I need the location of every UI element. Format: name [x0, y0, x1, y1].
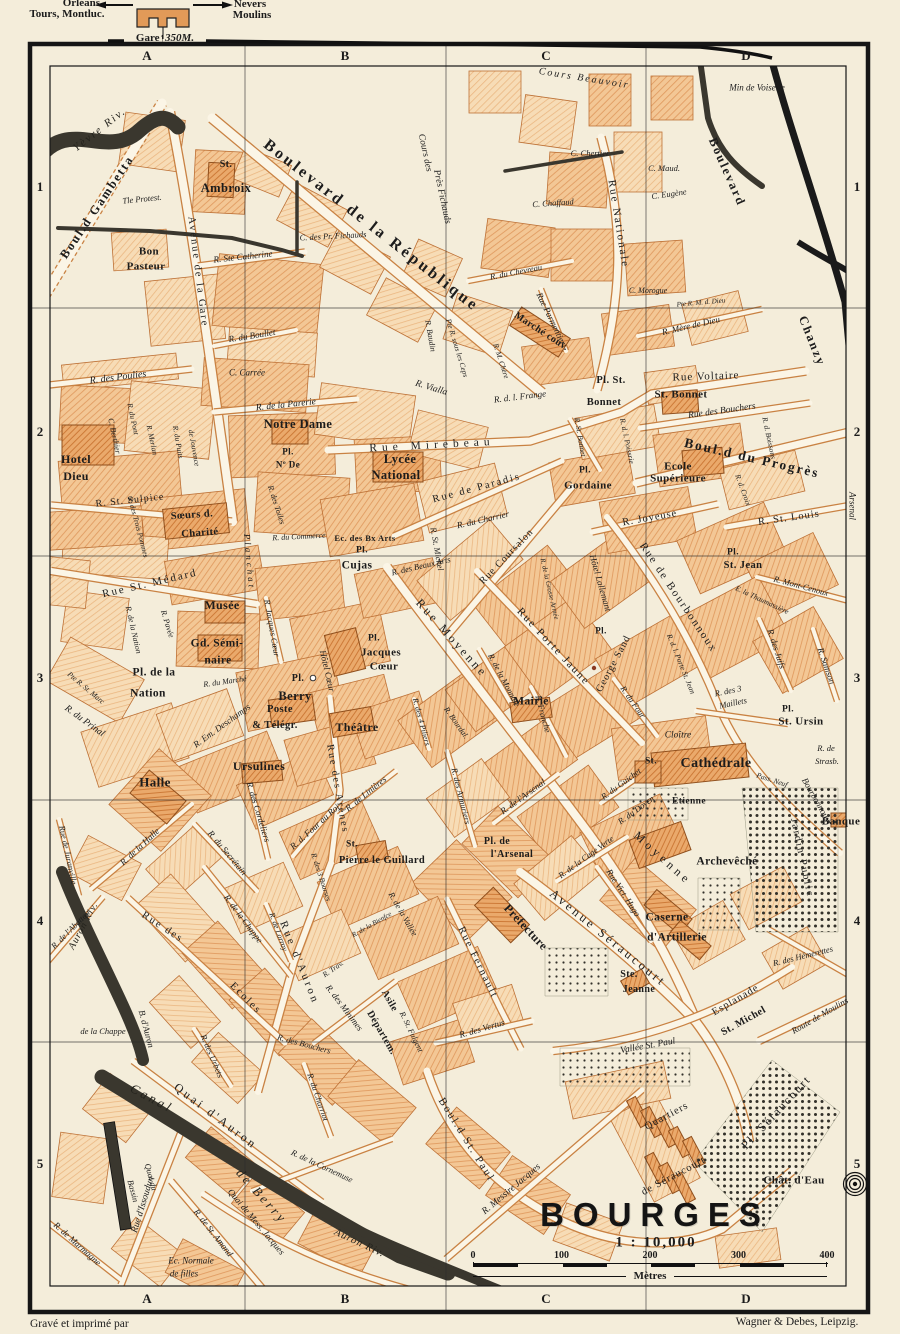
grid-index: 2 [37, 424, 44, 440]
map-artwork [0, 0, 900, 1334]
station-icon [137, 9, 189, 27]
scale-bar: 0100200300400 Mètres [473, 1250, 827, 1282]
dest-left-line2: Tours, Montluc. [29, 8, 104, 20]
credit-engraver: Gravé et imprimé par [30, 1318, 129, 1330]
grid-index: 5 [37, 1156, 44, 1172]
grid-index: 5 [854, 1156, 861, 1172]
grid-index: 3 [37, 670, 44, 686]
credit-publisher: Wagner & Debes, Leipzig. [736, 1316, 859, 1328]
place-berry-marker [310, 675, 316, 681]
grid-index: 4 [854, 913, 861, 929]
scale-unit: Mètres [626, 1270, 675, 1282]
grid-index: D [741, 1291, 750, 1307]
map-scale-ratio: 1 : 10,000 [615, 1235, 696, 1252]
grid-index: C [541, 1291, 550, 1307]
map-page: Orléans Tours, Montluc. Nevers Moulins G… [0, 0, 900, 1334]
scale-ticks: 0100200300400 [473, 1250, 827, 1262]
grid-index: C [541, 48, 550, 64]
grid-index: 3 [854, 670, 861, 686]
grid-index: 4 [37, 913, 44, 929]
water-tower-icon [844, 1173, 867, 1196]
route-arrow-right [193, 2, 233, 9]
station-elevation: 350M. [165, 32, 194, 44]
dest-right-line2: Moulins [233, 9, 272, 21]
map-title: BOURGES [540, 1196, 770, 1234]
station-name: Gare [136, 32, 160, 44]
city-plan-shapes [34, 54, 869, 1305]
grid-index: 2 [854, 424, 861, 440]
grid-index: A [142, 1291, 151, 1307]
grid-index: 1 [854, 179, 861, 195]
grid-index: B [341, 1291, 350, 1307]
station-label: Gare↑350M. [136, 32, 194, 44]
grid-index: 1 [37, 179, 44, 195]
george-sand-marker [592, 666, 596, 670]
grid-index: A [142, 48, 151, 64]
scale-bar-segments [473, 1262, 827, 1267]
grid-index: B [341, 48, 350, 64]
grid-index: D [741, 48, 750, 64]
